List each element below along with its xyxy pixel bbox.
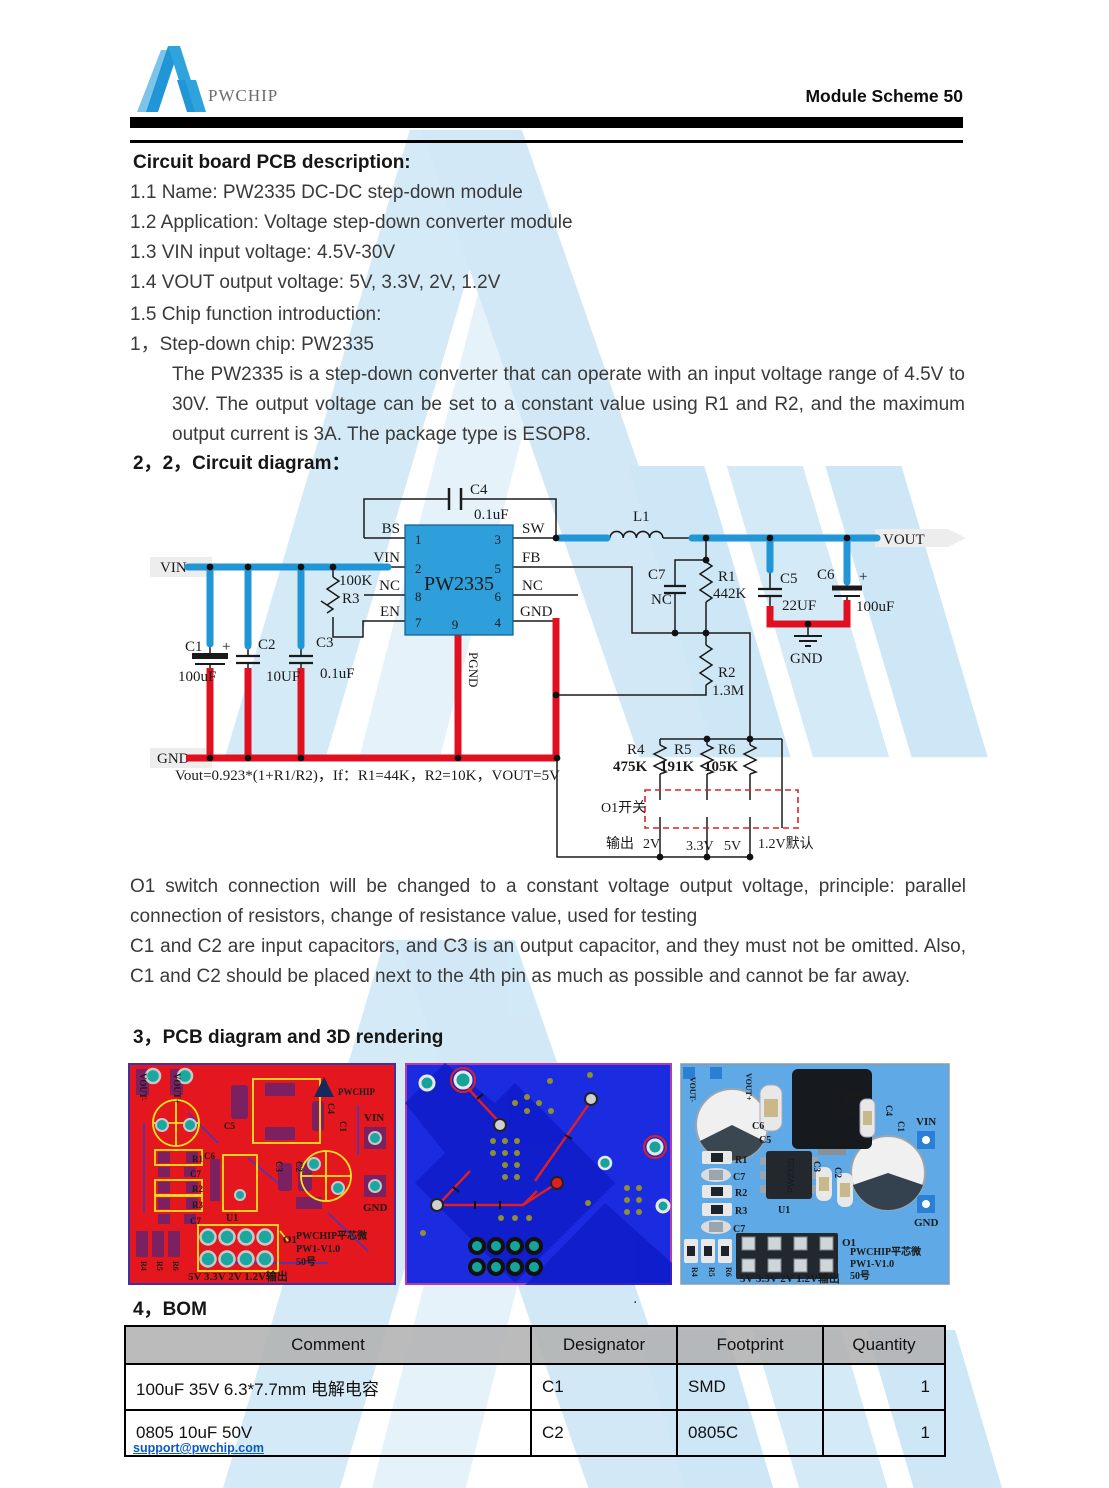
silk-board-no: 50号 <box>296 1256 316 1268</box>
chip-paragraph: The PW2335 is a step-down converter that… <box>172 360 965 450</box>
chip-u1-3d: PW2335 <box>760 1151 818 1199</box>
bom-header-row: Comment Designator Footprint Quantity <box>125 1326 945 1364</box>
bom-c1-comment: 100uF 35V 6.3*7.7mm 电解电容 <box>125 1364 531 1410</box>
doc-title: Module Scheme 50 <box>805 86 963 107</box>
silk-r3: R3 <box>192 1200 203 1210</box>
render-c7a: C7 <box>733 1172 745 1183</box>
o1-note: O1 switch connection will be changed to … <box>130 872 966 932</box>
render-board-no: 50号 <box>850 1270 870 1282</box>
silk-c6: C6 <box>204 1151 215 1161</box>
bom-c1-designator: C1 <box>531 1364 677 1410</box>
silk-r1: R1 <box>192 1154 203 1164</box>
option-5v: 5V <box>724 839 741 854</box>
pin-2: 2 <box>415 561 422 576</box>
bom-header-footprint: Footprint <box>677 1326 823 1364</box>
vout-net-label: VOUT <box>883 532 925 548</box>
bom-row-c1: 100uF 35V 6.3*7.7mm 电解电容 C1 SMD 1 <box>125 1364 945 1410</box>
c1-ref: C1 <box>185 639 203 655</box>
c6-value: 100uF <box>856 599 894 615</box>
r5-ref: R5 <box>674 742 692 758</box>
option-3v3: 3.3V <box>686 839 714 854</box>
vin-net-label: VIN <box>160 560 187 576</box>
support-email-link[interactable]: support@pwchip.com <box>133 1441 264 1455</box>
c6-plus: + <box>859 569 867 585</box>
r3-ref: R3 <box>342 591 360 607</box>
r3-value: 100K <box>339 573 373 589</box>
capacitor-c4-3d <box>860 1099 875 1137</box>
option-1v2-default: 1.2V默认 <box>758 836 814 852</box>
bom-header-comment: Comment <box>125 1326 531 1364</box>
resistor-r3-zigzag <box>321 577 339 613</box>
bom-table: Comment Designator Footprint Quantity 10… <box>124 1325 946 1457</box>
chip-label: PW2335 <box>424 573 494 595</box>
silk-c1: C1 <box>338 1121 348 1132</box>
render-gnd: GND <box>914 1217 939 1229</box>
c7-value: NC <box>651 592 672 608</box>
pcb-3d-render-image: L1 PW2335 <box>680 1063 950 1285</box>
render-vout-plus: VOUT+ <box>744 1073 753 1101</box>
pin-9: 9 <box>452 617 459 632</box>
silk-u1: U1 <box>226 1213 238 1224</box>
bom-header-quantity: Quantity <box>823 1326 945 1364</box>
c3-value: 0.1uF <box>320 666 355 682</box>
silk-vin: VIN <box>364 1112 384 1124</box>
bom-heading: 4，BOM <box>133 1295 207 1325</box>
pin-label-fb: FB <box>522 550 540 566</box>
pcb-description-heading: Circuit board PCB description: <box>133 148 411 178</box>
render-brand-cn: PWCHIP平芯微 <box>850 1245 922 1258</box>
pwchip-logo-icon <box>133 44 211 116</box>
r5-value: 191K <box>660 759 695 775</box>
pin-7: 7 <box>415 615 422 630</box>
r1-value: 442K <box>713 586 747 602</box>
bom-c1-quantity: 1 <box>823 1364 945 1410</box>
c5-value: 22UF <box>782 598 816 614</box>
document-page: PWCHIP Module Scheme 50 Circuit board PC… <box>0 0 1109 1488</box>
r6-ref: R6 <box>718 742 736 758</box>
bom-c1-footprint: SMD <box>677 1364 823 1410</box>
vout-formula: Vout=0.923*(1+R1/R2)，If：R1=44K，R2=10K，VO… <box>175 768 560 784</box>
render-c4: C4 <box>884 1105 894 1116</box>
render-r6: R6 <box>724 1267 733 1277</box>
c2-ref: C2 <box>258 637 276 653</box>
render-c5: C5 <box>759 1135 771 1146</box>
silk-o1: O1 <box>283 1234 297 1246</box>
pin-label-nc-right: NC <box>522 578 543 594</box>
silk-c4: C4 <box>326 1103 336 1114</box>
stray-dot: . <box>633 1290 637 1308</box>
desc-item-chip: 1，Step-down chip: PW2335 <box>130 330 374 360</box>
render-r1: R1 <box>735 1155 747 1166</box>
silk-vout-plus: VOUT+ <box>172 1073 182 1104</box>
pin-8: 8 <box>415 589 422 604</box>
pin-label-en: EN <box>380 604 400 620</box>
bom-header-designator: Designator <box>531 1326 677 1364</box>
capacitor-note: C1 and C2 are input capacitors, and C3 i… <box>130 932 966 992</box>
c7-ref: C7 <box>648 567 666 583</box>
r2-value: 1.3M <box>712 683 744 699</box>
net-tag-vout: VOUT <box>875 529 966 548</box>
r6-value: 105K <box>704 759 739 775</box>
circuit-diagram: VIN GND VOUT <box>130 470 980 864</box>
c2-value: 10UF <box>266 669 300 685</box>
render-c7b: C7 <box>733 1224 745 1235</box>
header-rule-thick <box>130 117 963 128</box>
render-vout-minus: VOUT- <box>688 1077 697 1102</box>
capacitor-symbols <box>192 488 862 664</box>
header-rule-thin <box>130 140 963 143</box>
pin-3: 3 <box>495 532 502 547</box>
render-r3: R3 <box>735 1206 747 1217</box>
r2-ref: R2 <box>718 665 736 681</box>
pcb-bottom-layer-image <box>405 1063 672 1285</box>
option-2v: 2V <box>643 837 660 852</box>
c4-value: 0.1uF <box>474 507 509 523</box>
c5-ref: C5 <box>780 571 798 587</box>
gnd-symbol-label: GND <box>790 651 823 667</box>
output-label: 输出 <box>606 836 634 852</box>
silk-brand-cn: PWCHIP平芯微 <box>296 1229 368 1242</box>
silk-r4: R4 <box>139 1261 148 1271</box>
pin-label-pgnd: PGND <box>466 652 481 687</box>
render-outputs: 5V 3.3V 2V 1.2V输出 <box>740 1271 840 1285</box>
pin-6: 6 <box>495 589 502 604</box>
silk-r2: R2 <box>192 1184 203 1194</box>
l1-ref: L1 <box>633 509 650 525</box>
chip-pw2335: PW2335 1 2 8 7 3 5 6 4 9 <box>405 525 513 635</box>
silk-r6: R6 <box>171 1261 180 1271</box>
render-r2: R2 <box>735 1188 747 1199</box>
r4-value: 475K <box>613 759 648 775</box>
c3-ref: C3 <box>316 635 334 651</box>
pin-label-gnd: GND <box>520 604 553 620</box>
silk-c3: C3 <box>274 1161 284 1172</box>
pin-label-nc-left: NC <box>379 578 400 594</box>
c1-value: 100uF <box>178 669 216 685</box>
pcb-top-layer-image: VOUT- VOUT+ C5 C6 C4 C1 VIN GND R1 C7 R2… <box>128 1063 396 1285</box>
pcb-brand-logo-text: PWCHIP <box>338 1087 376 1097</box>
silk-c7a: C7 <box>190 1169 201 1179</box>
desc-item-application: 1.2 Application: Voltage step-down conve… <box>130 208 573 238</box>
o1-switch-label: O1开关 <box>601 800 646 816</box>
bom-c2-quantity: 1 <box>823 1410 945 1456</box>
c1-plus: + <box>222 639 230 655</box>
render-r5: R5 <box>707 1267 716 1277</box>
render-vin: VIN <box>916 1116 936 1128</box>
gnd-hole <box>922 1200 930 1208</box>
pin-4: 4 <box>495 615 502 630</box>
bom-c2-designator: C2 <box>531 1410 677 1456</box>
brand-text: PWCHIP <box>208 86 278 106</box>
desc-item-vout: 1.4 VOUT output voltage: 5V, 3.3V, 2V, 1… <box>130 268 500 298</box>
render-c6: C6 <box>752 1121 764 1132</box>
desc-item-vin: 1.3 VIN input voltage: 4.5V-30V <box>130 238 395 268</box>
render-u1: U1 <box>778 1205 790 1216</box>
pin-label-bs: BS <box>382 521 400 537</box>
desc-item-function: 1.5 Chip function introduction: <box>130 300 381 330</box>
ground-symbol <box>794 636 822 646</box>
pin-label-vin: VIN <box>373 550 400 566</box>
r1-ref: R1 <box>718 569 736 585</box>
gnd-net-label: GND <box>157 751 190 767</box>
pcb-section-heading: 3，PCB diagram and 3D rendering <box>133 1023 443 1053</box>
silk-version: PW1-V1.0 <box>296 1244 340 1255</box>
render-c3: C3 <box>812 1161 822 1172</box>
pin-5: 5 <box>495 561 502 576</box>
render-version: PW1-V1.0 <box>850 1259 894 1270</box>
silk-c7b: C7 <box>190 1216 201 1226</box>
render-c1: C1 <box>896 1121 906 1132</box>
pin-1: 1 <box>415 532 422 547</box>
bom-c2-footprint: 0805C <box>677 1410 823 1456</box>
render-r4: R4 <box>690 1267 699 1277</box>
r4-ref: R4 <box>627 742 645 758</box>
c4-ref: C4 <box>470 482 488 498</box>
pin-label-sw: SW <box>522 521 545 537</box>
chip-marking: PW2335 <box>786 1158 796 1193</box>
silk-vout-minus: VOUT- <box>138 1073 148 1101</box>
inductor-l1-coil <box>610 531 663 538</box>
silk-outputs: 5V 3.3V 2V 1.2V输出 <box>188 1269 288 1283</box>
silk-c5: C5 <box>224 1121 235 1131</box>
c6-ref: C6 <box>817 567 835 583</box>
silk-c2: C2 <box>294 1161 304 1172</box>
render-c2: C2 <box>833 1167 843 1178</box>
vin-hole <box>922 1136 930 1144</box>
desc-item-name: 1.1 Name: PW2335 DC-DC step-down module <box>130 178 523 208</box>
silk-gnd: GND <box>363 1202 388 1214</box>
silk-r5: R5 <box>155 1261 164 1271</box>
